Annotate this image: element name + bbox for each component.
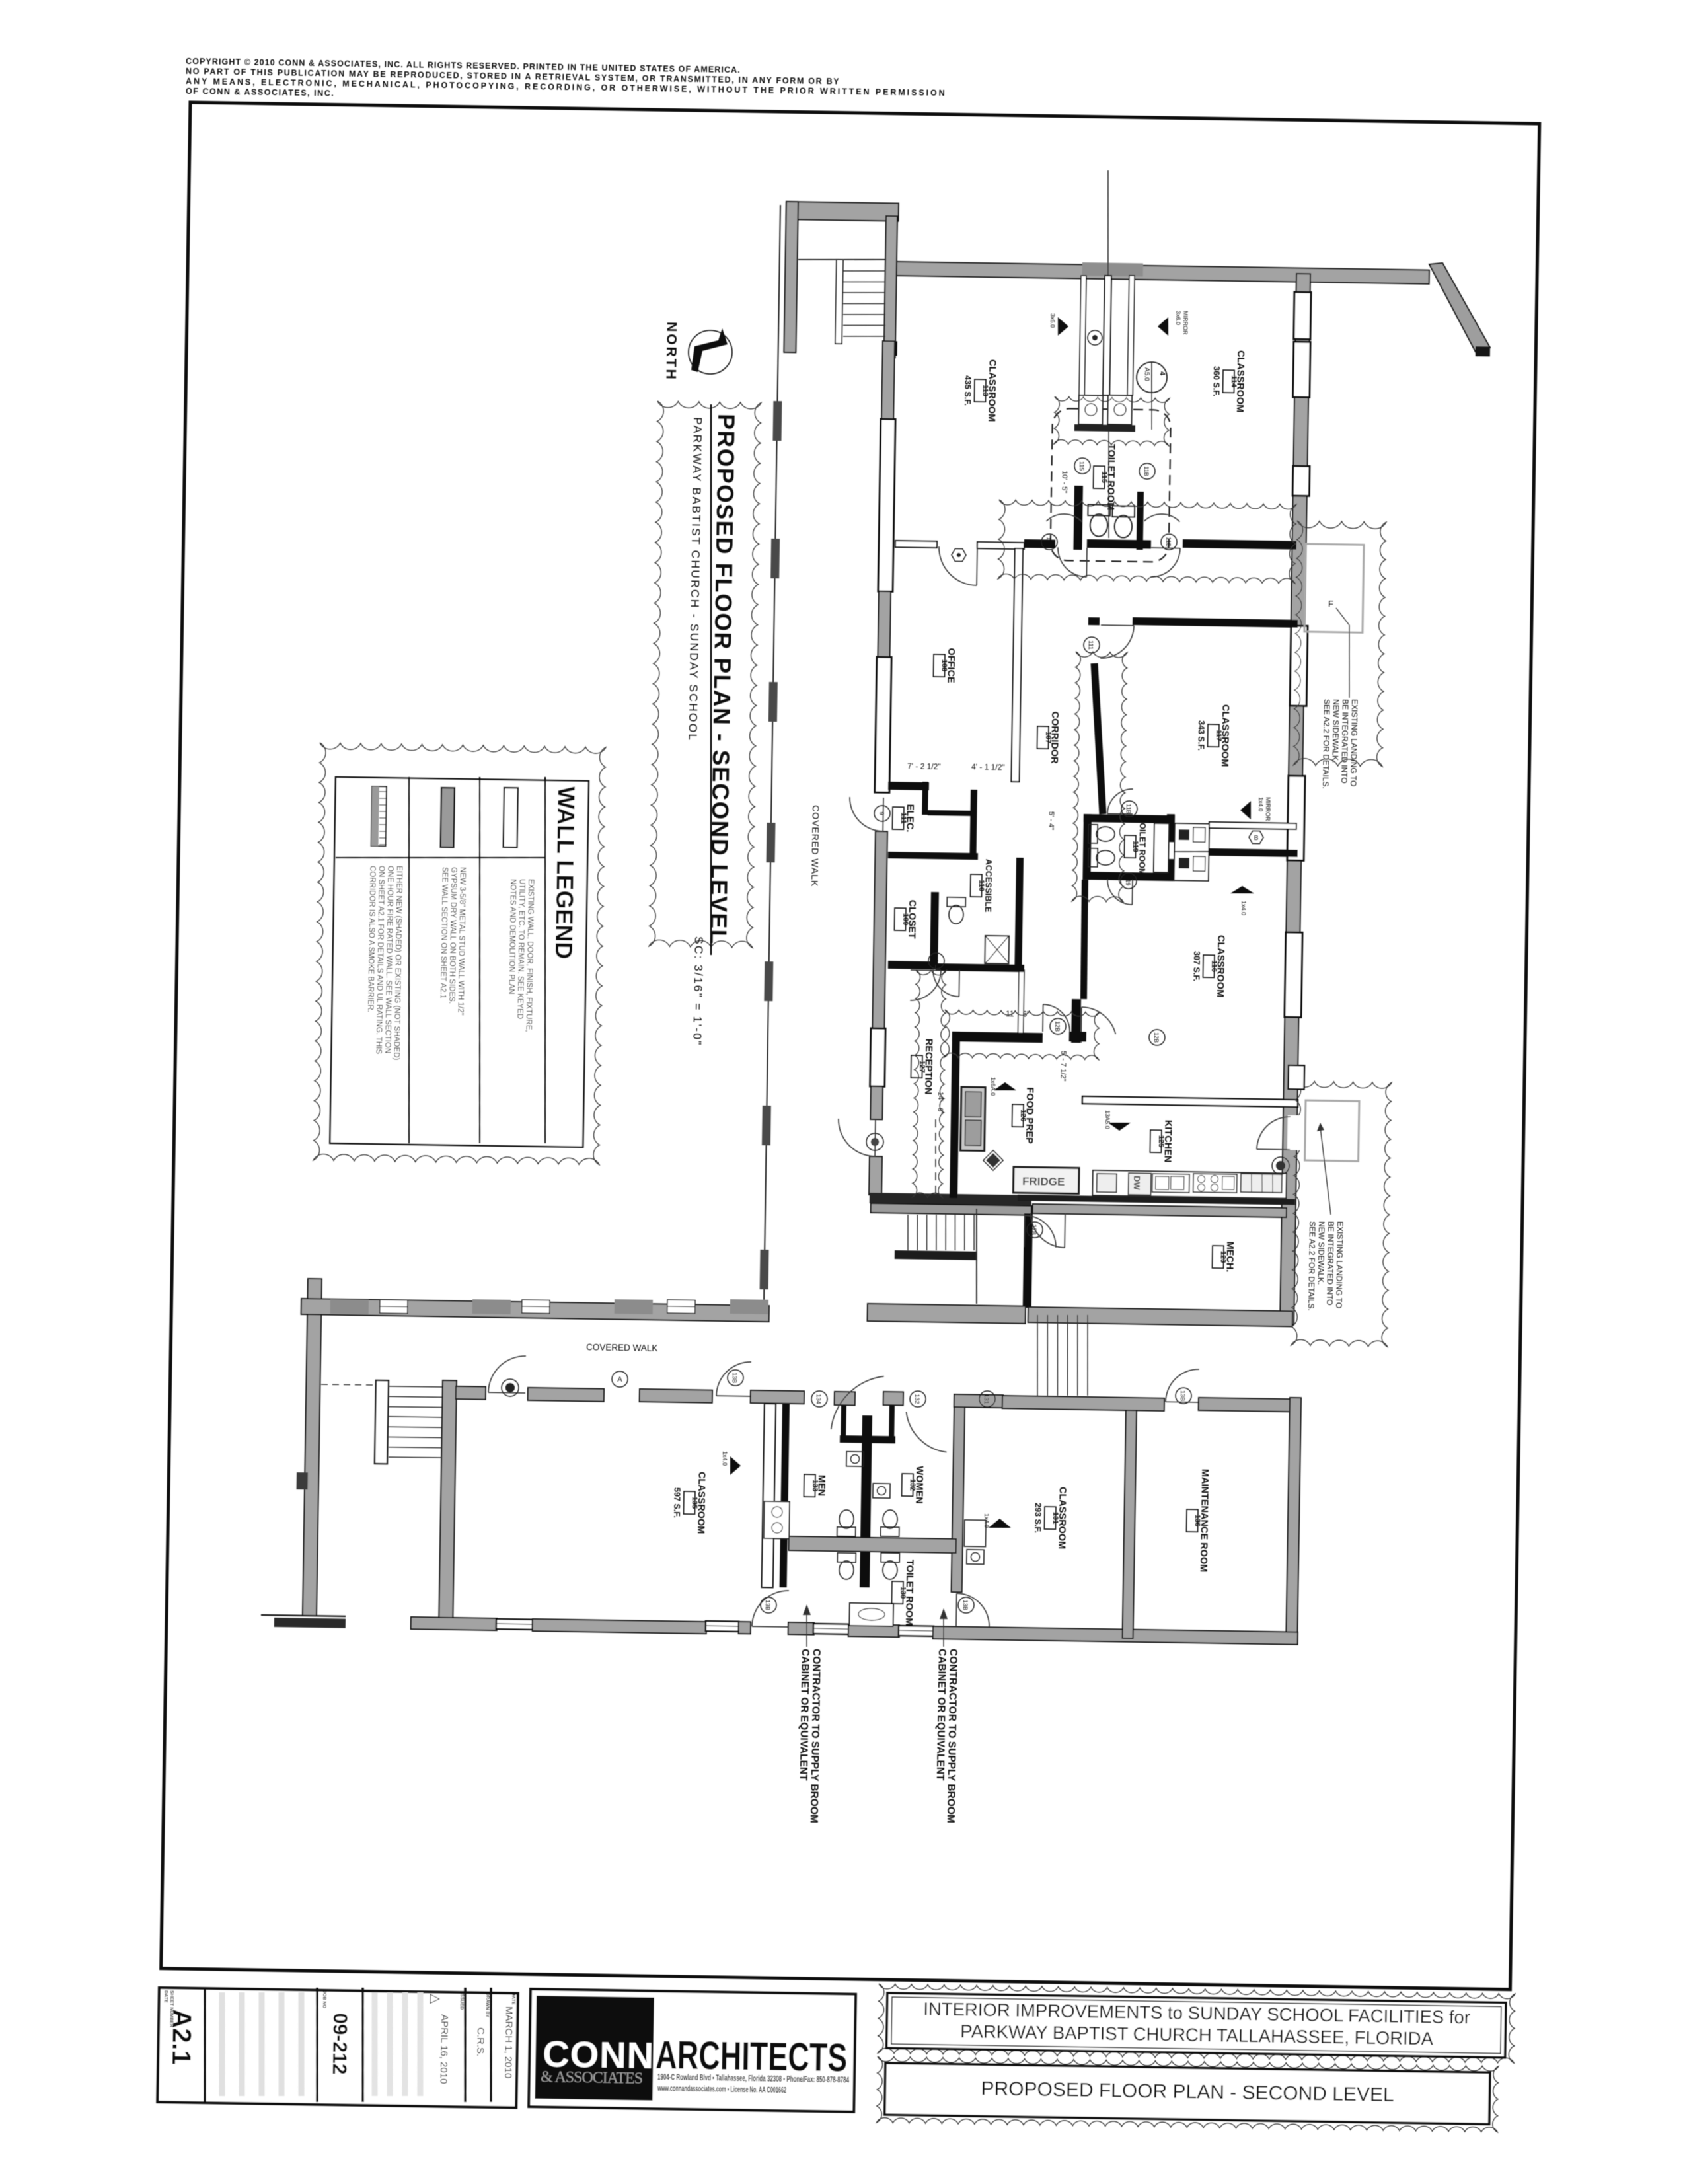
svg-text:COVERED WALK: COVERED WALK: [809, 805, 821, 887]
svg-text:119: 119: [1131, 841, 1139, 852]
svg-text:307 S.F.: 307 S.F.: [1191, 951, 1201, 981]
svg-text:12B: 12B: [1031, 1224, 1037, 1235]
svg-text:1x6A.0: 1x6A.0: [990, 1077, 996, 1096]
svg-text:13A5.0: 13A5.0: [1104, 1110, 1111, 1129]
svg-text:132: 132: [909, 1479, 917, 1491]
svg-text:SC: 3/16" = 1'-0": SC: 3/16" = 1'-0": [691, 936, 706, 1047]
svg-text:MIRROR: MIRROR: [1264, 797, 1271, 821]
svg-text:11B: 11B: [1143, 466, 1150, 476]
svg-text:JOB NO: JOB NO: [322, 1990, 326, 2008]
svg-text:7' - 2 1/2": 7' - 2 1/2": [907, 761, 941, 771]
svg-text:9: 9: [932, 959, 939, 962]
svg-text:119: 119: [1125, 876, 1131, 886]
svg-text:111: 111: [1088, 640, 1094, 650]
svg-text:ISSUED: ISSUED: [459, 1992, 464, 2010]
svg-text:A: A: [617, 1376, 622, 1384]
svg-text:12B: 12B: [1054, 1021, 1061, 1032]
svg-text:DW: DW: [1132, 1176, 1142, 1191]
svg-text:△: △: [428, 1994, 443, 2004]
svg-text:B: B: [1254, 835, 1259, 842]
svg-text:4: 4: [1158, 371, 1166, 376]
svg-text:3x6.0: 3x6.0: [1175, 311, 1181, 325]
svg-text:115: 115: [1100, 471, 1108, 483]
svg-text:597 S.F.: 597 S.F.: [672, 1487, 682, 1518]
svg-text:10' - 5": 10' - 5": [1060, 471, 1068, 493]
svg-text:09-212: 09-212: [328, 2013, 351, 2075]
svg-text:DATE: DATE: [511, 1992, 515, 2005]
svg-text:136: 136: [1193, 1515, 1201, 1527]
svg-text:107: 107: [1044, 732, 1052, 744]
svg-text:11B: 11B: [1125, 804, 1132, 814]
svg-text:360 S.F.: 360 S.F.: [1211, 366, 1221, 396]
svg-text:5' - 4": 5' - 4": [1047, 811, 1055, 830]
svg-text:CABINET OR EQUIVALENT: CABINET OR EQUIVALENT: [798, 1649, 811, 1781]
svg-text:11A: 11A: [1045, 537, 1052, 547]
svg-text:1x4.0: 1x4.0: [1240, 901, 1247, 915]
svg-text:13B: 13B: [1179, 1390, 1186, 1401]
svg-text:12B: 12B: [1153, 1032, 1160, 1043]
svg-text:435 S.F.: 435 S.F.: [963, 375, 973, 406]
svg-text:9: 9: [878, 811, 885, 815]
svg-text:& ASSOCIATES: & ASSOCIATES: [541, 2068, 643, 2087]
svg-text:11B: 11B: [1165, 537, 1172, 547]
svg-text:13B: 13B: [962, 1600, 969, 1610]
svg-text:135: 135: [691, 1497, 698, 1509]
svg-text:MARCH 1, 2010: MARCH 1, 2010: [502, 2006, 515, 2078]
svg-text:SEE A2.2 FOR DETAILS.: SEE A2.2 FOR DETAILS.: [1306, 1221, 1317, 1311]
svg-text:1x4.0: 1x4.0: [983, 1513, 990, 1528]
svg-text:NEW SIDEWALK.: NEW SIDEWALK.: [1331, 699, 1341, 763]
svg-text:115: 115: [1078, 461, 1085, 471]
svg-text:108: 108: [940, 659, 948, 672]
svg-text:4' - 1 1/2": 4' - 1 1/2": [971, 762, 1005, 772]
svg-text:293 S.F.: 293 S.F.: [1033, 1503, 1043, 1533]
svg-text:1x4.0: 1x4.0: [1257, 797, 1264, 811]
svg-text:APRIL 16, 2010: APRIL 16, 2010: [437, 2014, 450, 2084]
svg-text:132: 132: [914, 1394, 920, 1404]
svg-text:A5.0: A5.0: [1143, 367, 1150, 381]
svg-text:C.R.S.: C.R.S.: [474, 2027, 486, 2056]
svg-text:CABINET OR EQUIVALENT: CABINET OR EQUIVALENT: [934, 1649, 948, 1781]
svg-text:NEW SIDEWALK.: NEW SIDEWALK.: [1316, 1221, 1327, 1285]
svg-text:3x6.0: 3x6.0: [1049, 313, 1056, 328]
svg-text:131: 131: [1051, 1512, 1059, 1525]
svg-text:FRIDGE: FRIDGE: [1022, 1175, 1065, 1188]
svg-text:SEE A2.2 FOR DETAILS.: SEE A2.2 FOR DETAILS.: [1321, 699, 1331, 789]
svg-text:126: 126: [1019, 1110, 1027, 1122]
svg-text:MIRROR: MIRROR: [1181, 311, 1189, 335]
svg-text:116: 116: [1210, 960, 1218, 972]
svg-text:A2.1: A2.1: [167, 2009, 196, 2065]
svg-text:134: 134: [815, 1394, 822, 1404]
svg-text:343 S.F.: 343 S.F.: [1196, 720, 1206, 751]
svg-text:114: 114: [1230, 375, 1238, 388]
svg-text:123: 123: [1219, 1251, 1227, 1263]
svg-text:1x4.0: 1x4.0: [722, 1451, 728, 1466]
svg-text:117: 117: [1215, 730, 1222, 741]
svg-text:COVERED WALK: COVERED WALK: [586, 1342, 658, 1353]
svg-text:109: 109: [901, 913, 909, 926]
svg-text:111: 111: [899, 812, 907, 823]
svg-text:13B: 13B: [765, 1600, 771, 1610]
svg-text:133: 133: [811, 1480, 819, 1492]
svg-text:125: 125: [1157, 1135, 1165, 1148]
svg-text:DATE: DATE: [163, 1990, 168, 2003]
svg-text:113: 113: [981, 385, 989, 396]
svg-text:13B: 13B: [731, 1373, 738, 1383]
svg-text:110: 110: [977, 880, 985, 891]
svg-text:NORTH: NORTH: [663, 322, 679, 381]
svg-text:WALL LEGEND: WALL LEGEND: [550, 786, 580, 960]
svg-text:DRAWN BY: DRAWN BY: [484, 1992, 490, 2018]
svg-text:130: 130: [899, 1587, 907, 1599]
svg-text:F: F: [1328, 599, 1333, 609]
svg-text:131: 131: [983, 1394, 990, 1404]
